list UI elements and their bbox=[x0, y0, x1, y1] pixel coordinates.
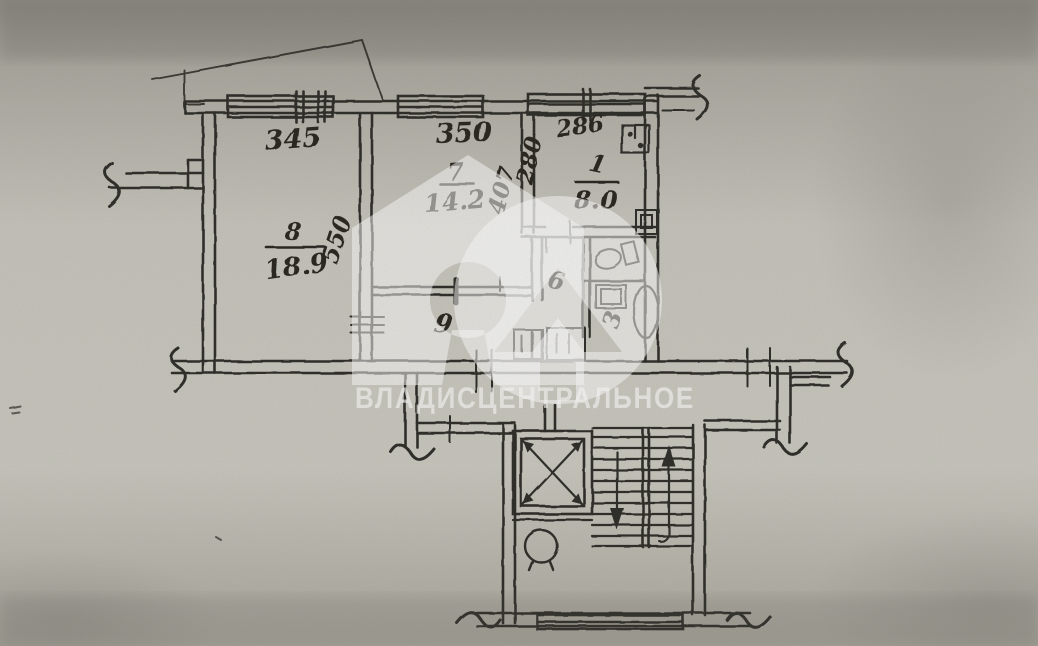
film-grain bbox=[0, 0, 1038, 646]
bottom-shadow bbox=[0, 596, 1038, 646]
floor-plan-svg: 345 350 286 280 407 550 8 18.9 7 14.2 1 … bbox=[0, 0, 1038, 646]
floor-plan-scan: 345 350 286 280 407 550 8 18.9 7 14.2 1 … bbox=[0, 0, 1038, 646]
